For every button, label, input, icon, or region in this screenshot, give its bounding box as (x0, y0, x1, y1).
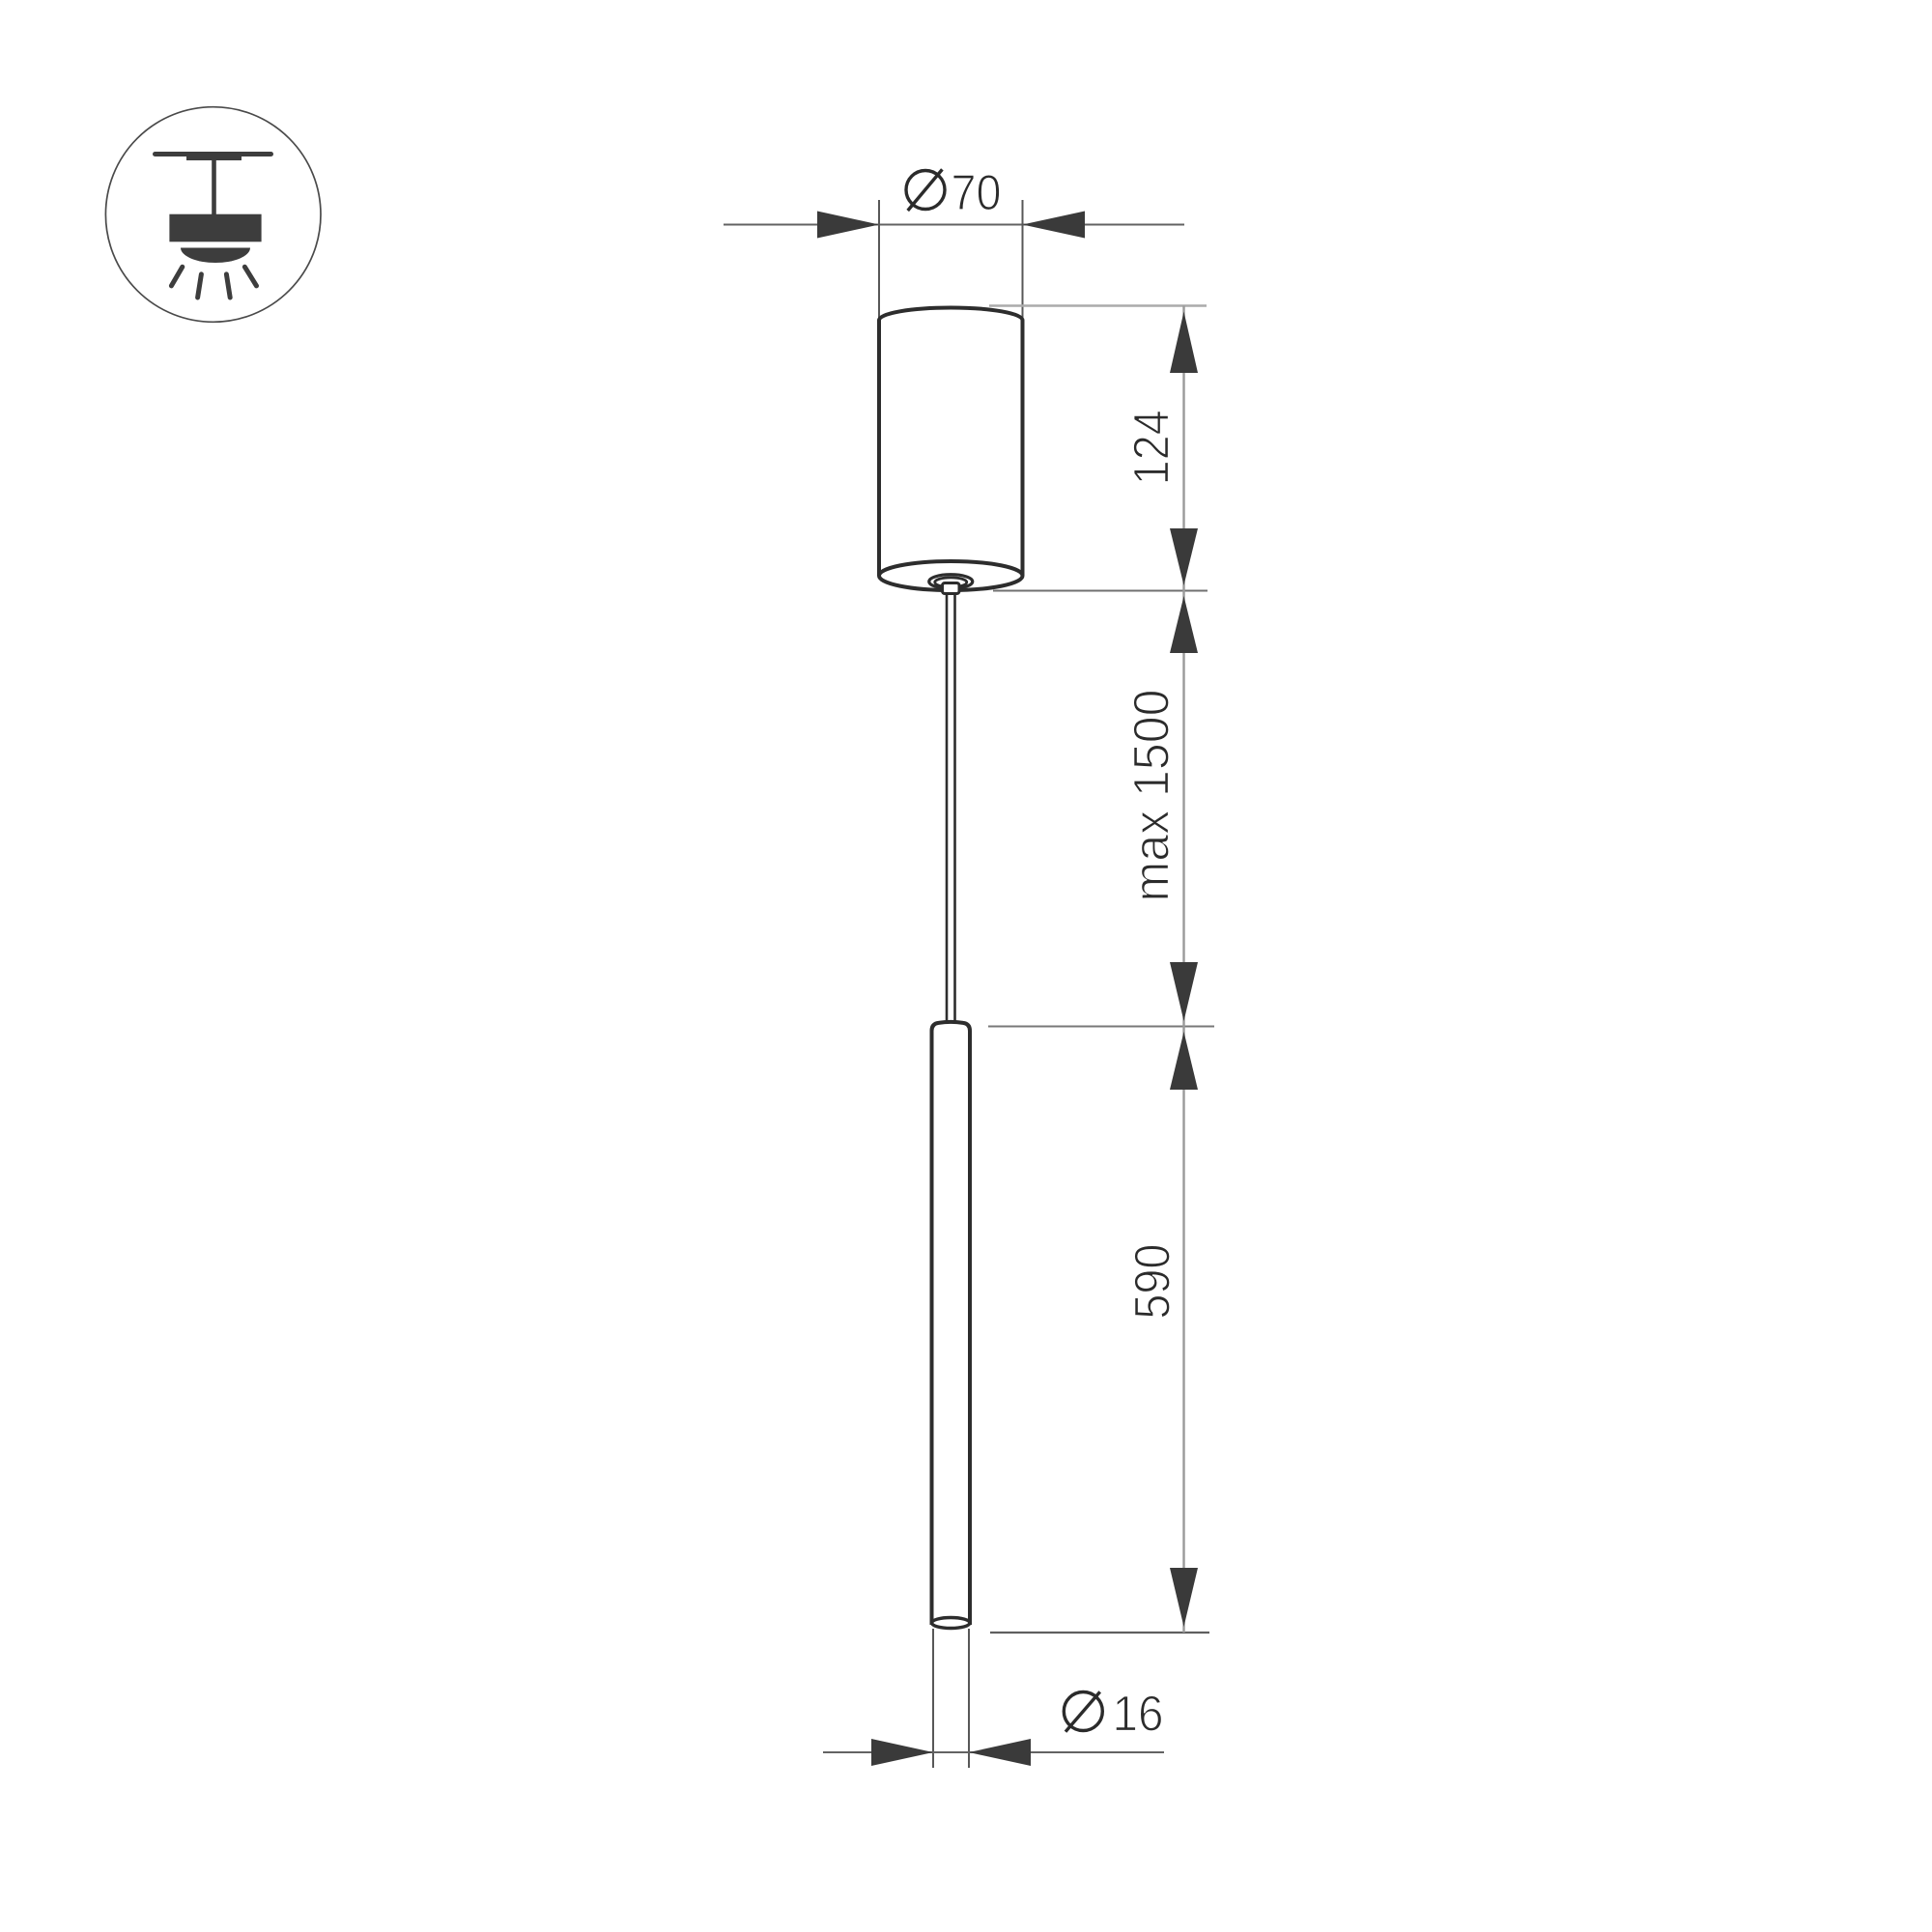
svg-text:590: 590 (1125, 1244, 1181, 1320)
svg-text:max 1500: max 1500 (1124, 690, 1180, 902)
svg-text:124: 124 (1124, 410, 1180, 485)
svg-text:70: 70 (952, 165, 1002, 221)
svg-text:16: 16 (1113, 1687, 1164, 1743)
